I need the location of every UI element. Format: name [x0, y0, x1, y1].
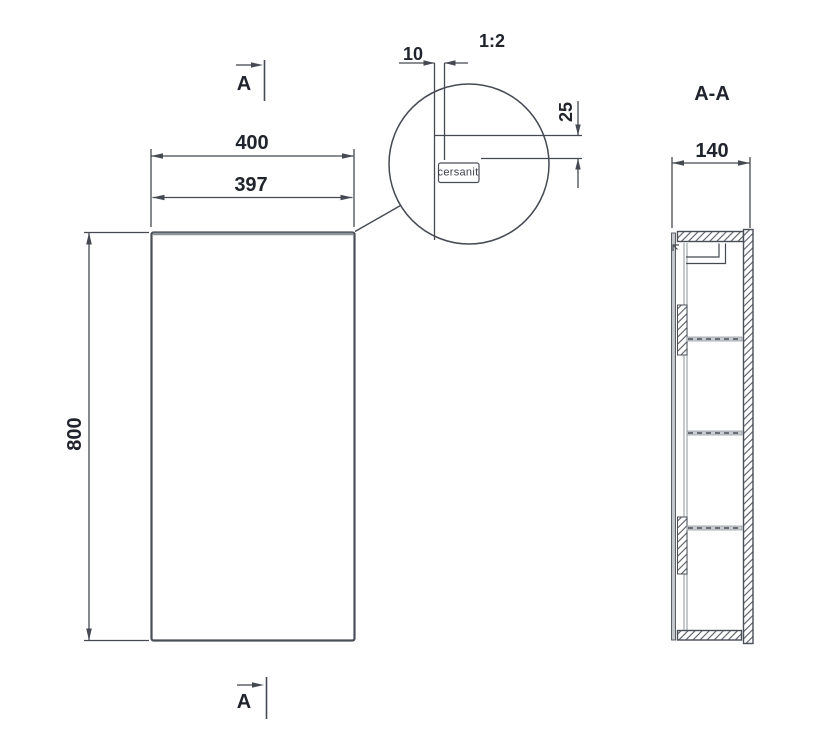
section-title-label: A-A: [694, 84, 730, 104]
section-view: [672, 157, 754, 644]
door-thickness-dim-label: 10: [403, 45, 423, 63]
logo-offset-dim-label: 25: [557, 102, 575, 122]
dimension-400: [151, 153, 354, 159]
dimension-25: [575, 101, 580, 188]
front-door-width-dim-label: 397: [234, 175, 267, 195]
technical-drawing-page: A 400 397 800 A 1:2 10 25 cersanit A-A 1…: [0, 0, 823, 738]
dimension-800: [84, 233, 149, 641]
front-view: [84, 60, 355, 719]
section-back-panel: [744, 230, 754, 644]
section-bottom-panel: [678, 631, 742, 641]
section-mark-bottom-label: A: [237, 692, 251, 712]
front-width-dim-label: 400: [235, 133, 268, 153]
detail-leader-line: [355, 206, 401, 232]
brand-logo-text: cersanit: [438, 168, 479, 179]
cabinet-front-outline: [152, 233, 355, 641]
dimension-140: [672, 157, 750, 228]
drawing-linework: [0, 0, 823, 738]
section-hinge-block-lower: [678, 517, 688, 574]
section-top-panel: [678, 232, 744, 242]
section-door: [672, 233, 676, 640]
section-mark-top-label: A: [237, 74, 251, 94]
front-height-dim-label: 800: [65, 417, 85, 450]
section-hinge-block-upper: [678, 305, 688, 355]
detail-view: [355, 60, 582, 244]
section-hanging-rail: [686, 244, 726, 264]
detail-scale-label: 1:2: [479, 32, 505, 50]
section-shelves: [687, 337, 742, 530]
section-depth-dim-label: 140: [695, 141, 728, 161]
